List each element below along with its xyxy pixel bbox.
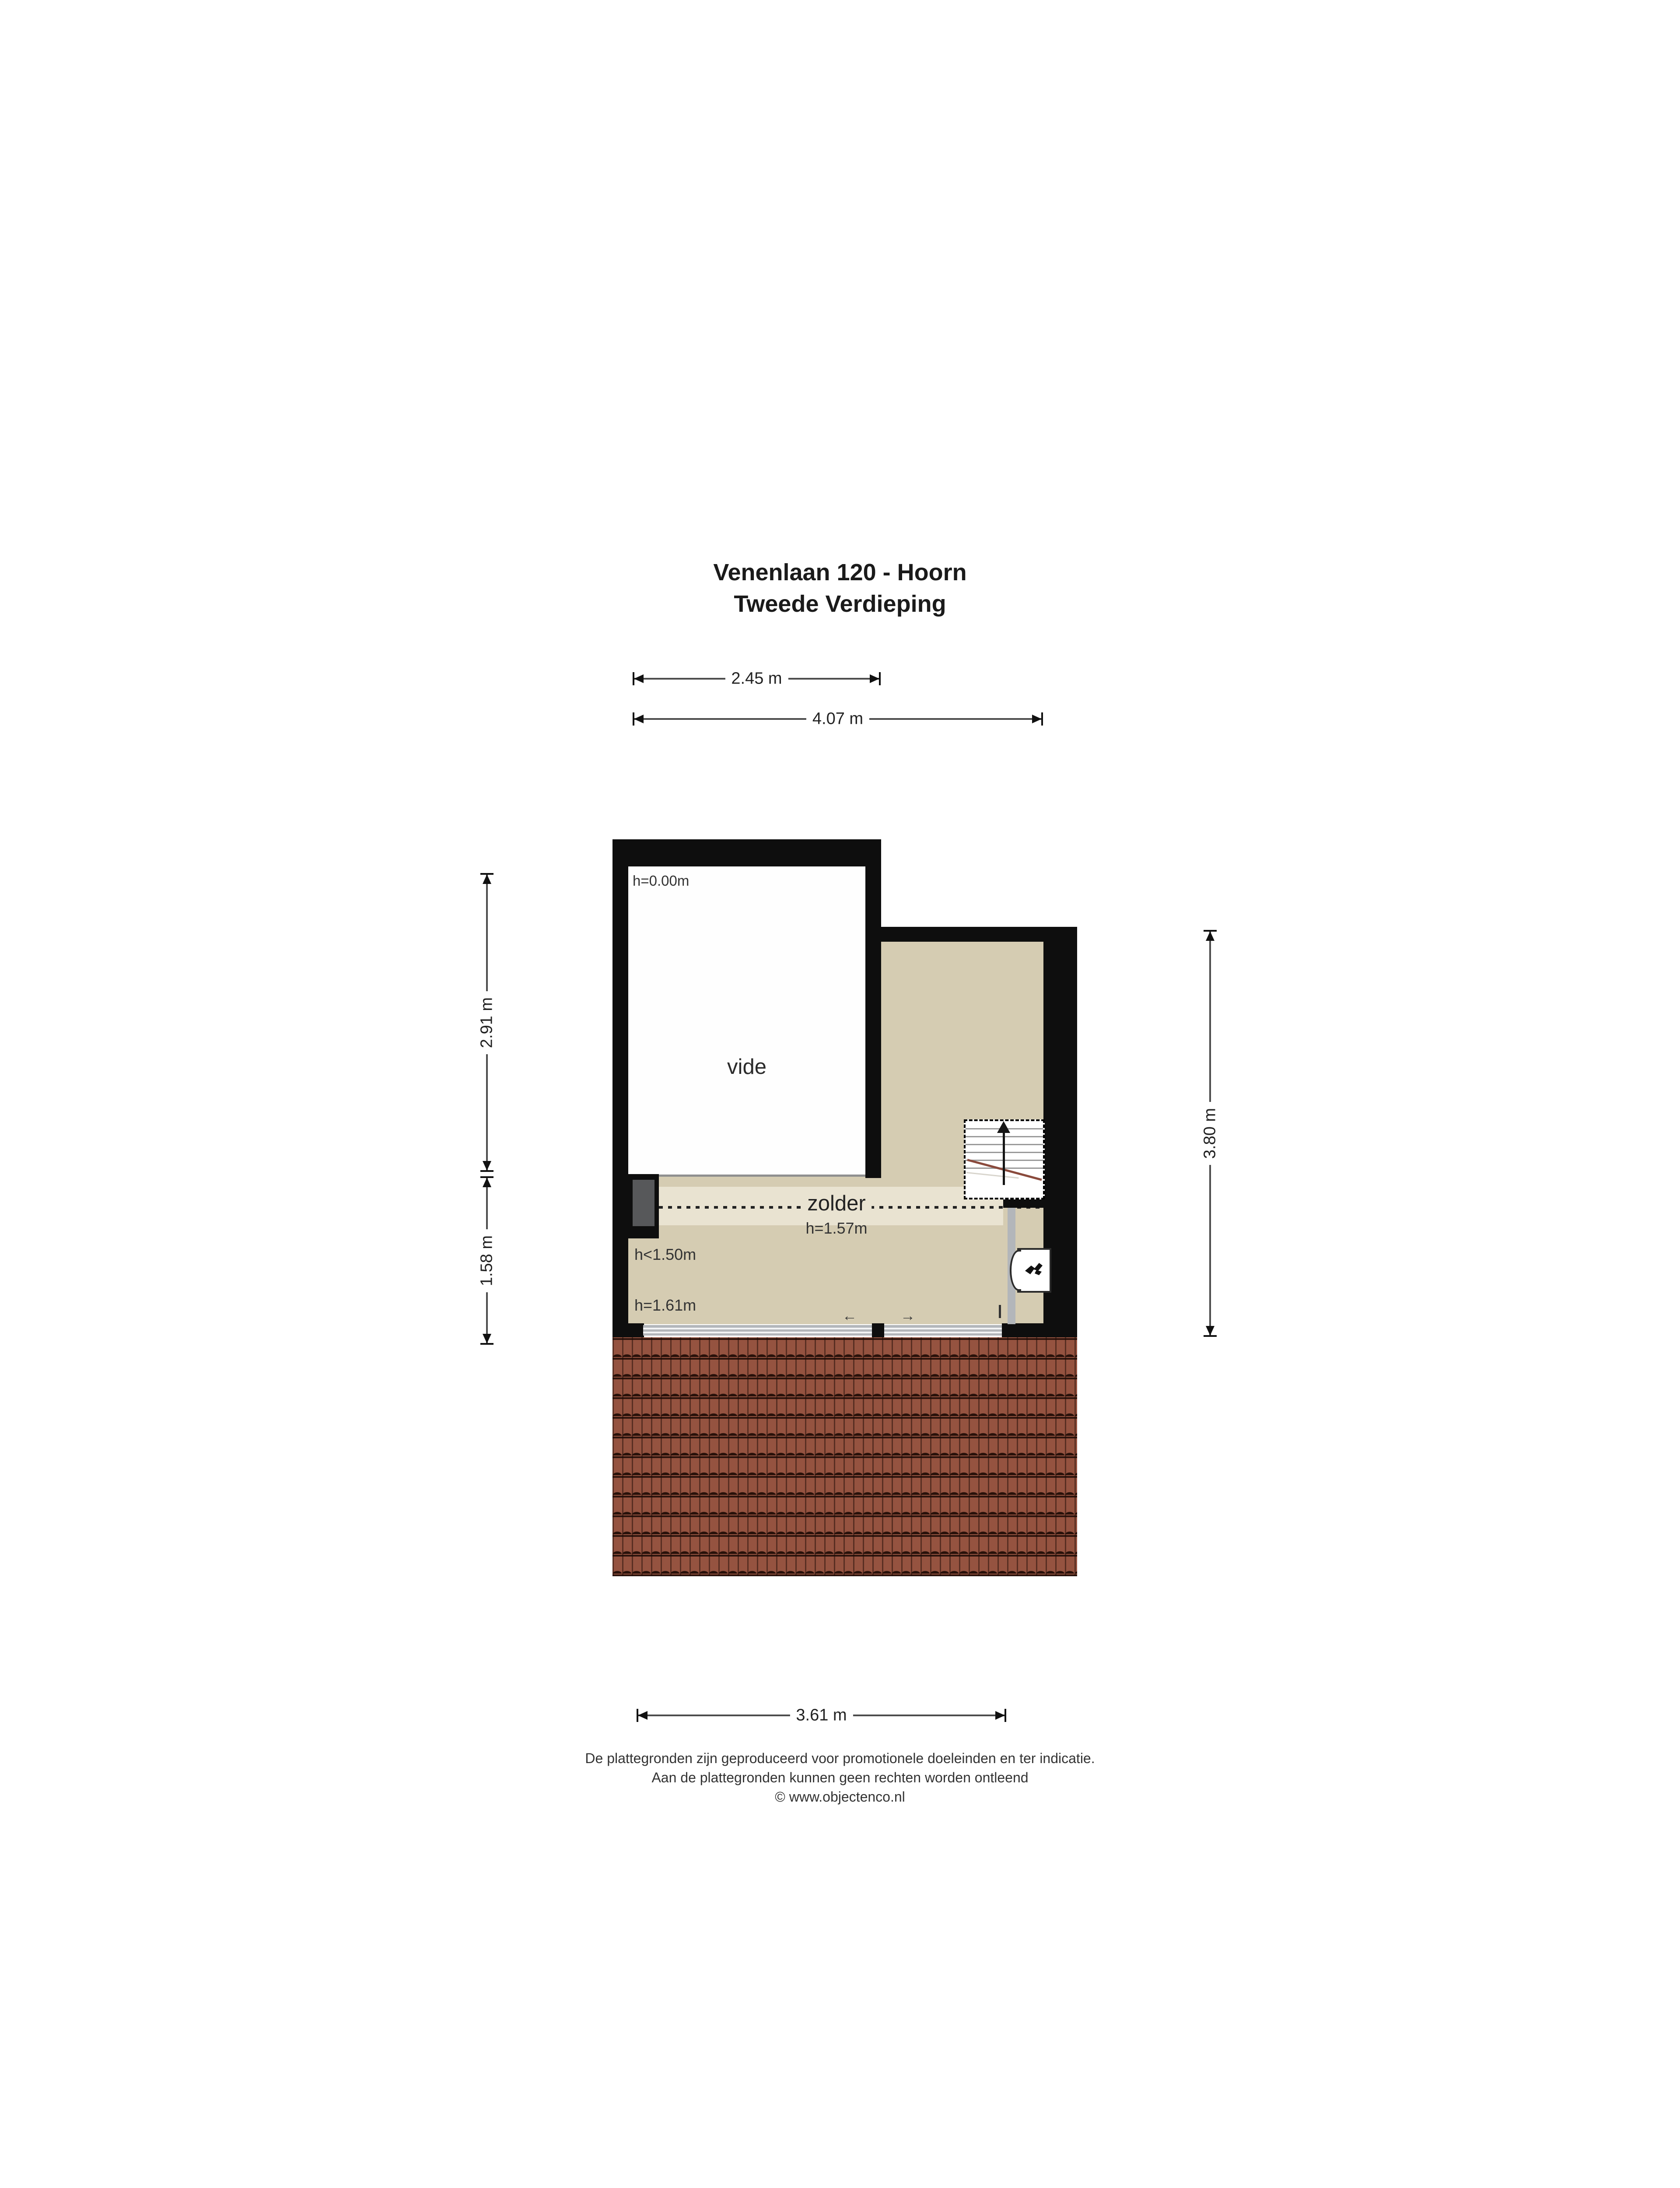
window-slide-left-arrow-icon: ←	[842, 1308, 857, 1325]
stairs-up-arrow	[1003, 1131, 1005, 1185]
staircase	[964, 1119, 1045, 1199]
wall-bottom-right	[1002, 1323, 1077, 1337]
low-headroom-label: h<1.50m	[634, 1245, 696, 1264]
wall-left	[612, 839, 628, 1337]
page-title: Venenlaan 120 - Hoorn Tweede Verdieping	[0, 557, 1680, 620]
arrowhead-up-icon	[1206, 931, 1214, 941]
wall-bottom-left	[612, 1323, 644, 1337]
dimension-top-full: 4.07 m	[633, 709, 1043, 729]
dimension-label: 1.58 m	[477, 1229, 497, 1292]
dimension-label: 4.07 m	[806, 709, 869, 729]
dimension-bottom: 3.61 m	[637, 1706, 1006, 1725]
arrowhead-left-icon	[634, 674, 644, 683]
arrowhead-right-icon	[995, 1711, 1005, 1720]
page-title-floor: Tweede Verdieping	[0, 588, 1680, 620]
dimension-left-upper: 2.91 m	[477, 873, 497, 1172]
arrowhead-up-icon	[483, 1178, 491, 1187]
arrowhead-left-icon	[634, 715, 644, 723]
dimension-top-partial: 2.45 m	[633, 669, 881, 688]
vide-room-label: vide	[727, 1055, 766, 1079]
arrowhead-up-icon	[483, 874, 491, 884]
arrowhead-down-icon	[483, 1161, 491, 1171]
floorplan-page: Venenlaan 120 - Hoorn Tweede Verdieping …	[0, 0, 1680, 2188]
arrowhead-down-icon	[1206, 1326, 1214, 1336]
chimney-shaft	[633, 1180, 654, 1226]
stairs-up-arrowhead-icon	[997, 1121, 1010, 1133]
window-glass-line	[643, 1332, 1002, 1333]
washbasin	[1017, 1248, 1051, 1293]
dimension-label: 2.91 m	[477, 991, 497, 1054]
zolder-height-label: h=1.57m	[805, 1219, 867, 1238]
window-mullion	[872, 1323, 884, 1337]
stair-winder-line	[966, 1172, 1019, 1179]
faucet-icon	[1019, 1250, 1050, 1291]
page-title-address: Venenlaan 120 - Hoorn	[0, 557, 1680, 588]
window-glass-line	[643, 1328, 1002, 1329]
vide-room	[628, 866, 865, 1176]
dimension-label: 3.80 m	[1200, 1102, 1221, 1165]
arrowhead-right-icon	[870, 674, 879, 683]
vide-height-label: h=0.00m	[633, 873, 689, 889]
disclaimer: De plattegronden zijn geproduceerd voor …	[0, 1749, 1680, 1806]
arrowhead-left-icon	[638, 1711, 647, 1720]
kneewall-height-label: h=1.61m	[634, 1296, 696, 1315]
niche-tick	[999, 1305, 1001, 1318]
arrowhead-right-icon	[1032, 715, 1042, 723]
arrowhead-down-icon	[483, 1334, 491, 1343]
dimension-left-lower: 1.58 m	[477, 1176, 497, 1345]
wall-step-vide-right	[865, 839, 881, 1178]
roof-tile-texture	[612, 1337, 1077, 1576]
disclaimer-line: Aan de plattegronden kunnen geen rechten…	[0, 1768, 1680, 1787]
vide-edge-line	[628, 1175, 865, 1177]
window-slide-right-arrow-icon: →	[900, 1308, 915, 1325]
copyright-line: © www.objectenco.nl	[0, 1787, 1680, 1806]
disclaimer-line: De plattegronden zijn geproduceerd voor …	[0, 1749, 1680, 1768]
wall-top-upper	[612, 839, 881, 866]
dimension-label: 3.61 m	[790, 1705, 853, 1726]
dormer-window-band	[643, 1325, 1002, 1336]
dimension-label: 2.45 m	[725, 669, 788, 689]
zolder-room-label: zolder	[801, 1191, 871, 1216]
dimension-right: 3.80 m	[1200, 930, 1220, 1337]
